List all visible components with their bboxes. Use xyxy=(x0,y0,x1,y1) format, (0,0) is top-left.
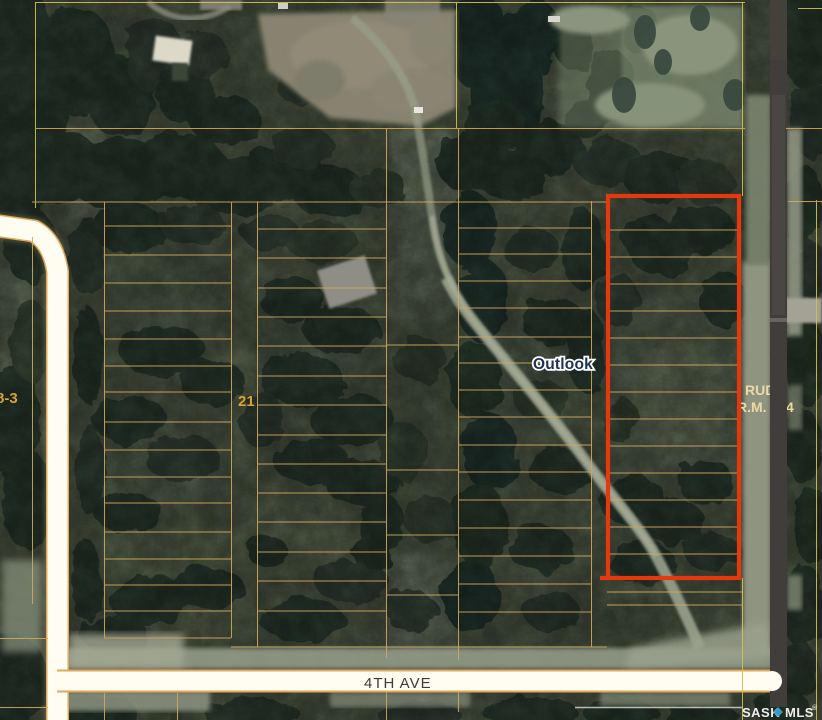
svg-text:MLS: MLS xyxy=(785,705,814,720)
svg-text:4TH AVE: 4TH AVE xyxy=(364,675,432,692)
svg-text:8-3: 8-3 xyxy=(0,390,18,407)
svg-text:21: 21 xyxy=(238,393,255,410)
svg-text:Outlook: Outlook xyxy=(533,356,593,373)
svg-text:®: ® xyxy=(812,704,818,712)
